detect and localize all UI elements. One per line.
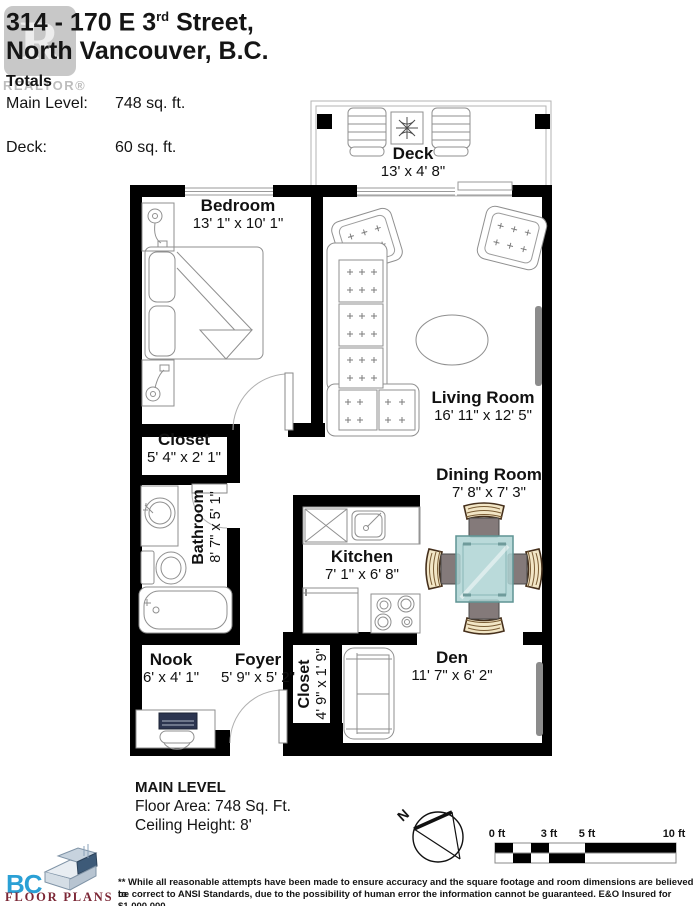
totals-main-level-label: Main Level: xyxy=(6,95,88,113)
room-name: Living Room xyxy=(432,388,535,407)
room-dims: 4' 9" x 1' 9" xyxy=(314,648,331,719)
coffee-table xyxy=(416,315,488,365)
room-name: Den xyxy=(411,648,492,667)
sectional-sofa xyxy=(327,243,419,436)
room-dims: 8' 7" x 5' 1" xyxy=(208,489,225,565)
room-dims: 7' 1" x 6' 8" xyxy=(325,566,399,583)
bc-logo-house-icon xyxy=(45,844,97,890)
nook-desk xyxy=(136,710,215,749)
room-name: Closet xyxy=(295,648,314,719)
room-name: Deck xyxy=(381,144,445,163)
title-line1-suffix: Street, xyxy=(169,8,254,36)
bc-floorplans-logo-text: FLOOR PLANS xyxy=(5,890,113,905)
title-ordinal: rd xyxy=(156,9,169,24)
room-name: Bathroom xyxy=(189,489,208,565)
room-dims: 11' 7" x 6' 2" xyxy=(411,667,492,684)
floor-area-text: Floor Area: 748 Sq. Ft. xyxy=(135,798,291,816)
scale-label-5ft: 5 ft xyxy=(579,828,596,840)
bed xyxy=(145,247,263,359)
totals-heading: Totals xyxy=(6,73,52,91)
nightstand-lamp-bottom xyxy=(142,360,174,406)
scale-label-3ft: 3 ft xyxy=(541,828,558,840)
title-line1-prefix: 314 - 170 E 3 xyxy=(6,8,156,36)
room-dims: 13' 1" x 10' 1" xyxy=(193,215,284,232)
room-name: Bedroom xyxy=(193,196,284,215)
room-label-foyer: Foyer 5' 9" x 5' 2" xyxy=(221,650,295,686)
scale-label-0ft: 0 ft xyxy=(489,828,506,840)
floor-plan-graphics xyxy=(0,0,697,906)
level-title: MAIN LEVEL xyxy=(135,779,226,796)
room-dims: 5' 9" x 5' 2" xyxy=(221,669,295,686)
room-label-bathroom: Bathroom 8' 7" x 5' 1" xyxy=(189,489,225,565)
floor-plan-page: R REALTOR® 314 - 170 E 3rd Street, North… xyxy=(0,0,697,906)
room-dims: 7' 8" x 7' 3" xyxy=(436,484,542,501)
compass-icon xyxy=(413,812,463,862)
room-dims: 6' x 4' 1" xyxy=(143,669,199,686)
room-label-bedroom: Bedroom 13' 1" x 10' 1" xyxy=(193,196,284,232)
room-name: Dining Room xyxy=(436,465,542,484)
scale-label-10ft: 10 ft xyxy=(663,828,686,840)
room-dims: 13' x 4' 8" xyxy=(381,163,445,180)
room-label-kitchen: Kitchen 7' 1" x 6' 8" xyxy=(325,547,399,583)
totals-deck-value: 60 sq. ft. xyxy=(115,139,176,157)
scale-bar xyxy=(495,843,676,863)
stove xyxy=(371,594,420,633)
dining-table-set xyxy=(426,503,542,634)
disclaimer-line2: be correct to ANSI Standards, due to the… xyxy=(118,889,696,906)
deck-plant-table xyxy=(391,112,423,144)
fridge xyxy=(303,588,358,633)
kitchen-counter xyxy=(303,507,420,544)
room-name: Kitchen xyxy=(325,547,399,566)
title-line2: North Vancouver, B.C. xyxy=(6,37,269,65)
den-sofa xyxy=(344,648,394,739)
room-label-dining-room: Dining Room 7' 8" x 7' 3" xyxy=(436,465,542,501)
room-name: Foyer xyxy=(221,650,295,669)
totals-deck-label: Deck: xyxy=(6,139,47,157)
tv-living xyxy=(535,306,542,386)
room-label-closet: Closet 5' 4" x 2' 1" xyxy=(147,430,221,466)
totals-main-level-value: 748 sq. ft. xyxy=(115,95,185,113)
room-label-entry-closet: Closet 4' 9" x 1' 9" xyxy=(295,648,331,719)
room-label-living-room: Living Room 16' 11" x 12' 5" xyxy=(432,388,535,424)
page-title: 314 - 170 E 3rd Street, North Vancouver,… xyxy=(6,2,269,66)
tv-den xyxy=(536,662,543,736)
room-dims: 5' 4" x 2' 1" xyxy=(147,449,221,466)
room-label-den: Den 11' 7" x 6' 2" xyxy=(411,648,492,684)
room-label-deck: Deck 13' x 4' 8" xyxy=(381,144,445,180)
armchair-right xyxy=(475,204,548,271)
ceiling-height-text: Ceiling Height: 8' xyxy=(135,817,252,835)
room-name: Nook xyxy=(143,650,199,669)
room-label-nook: Nook 6' x 4' 1" xyxy=(143,650,199,686)
room-dims: 16' 11" x 12' 5" xyxy=(432,407,535,424)
nightstand-lamp-top xyxy=(142,203,174,251)
room-name: Closet xyxy=(147,430,221,449)
